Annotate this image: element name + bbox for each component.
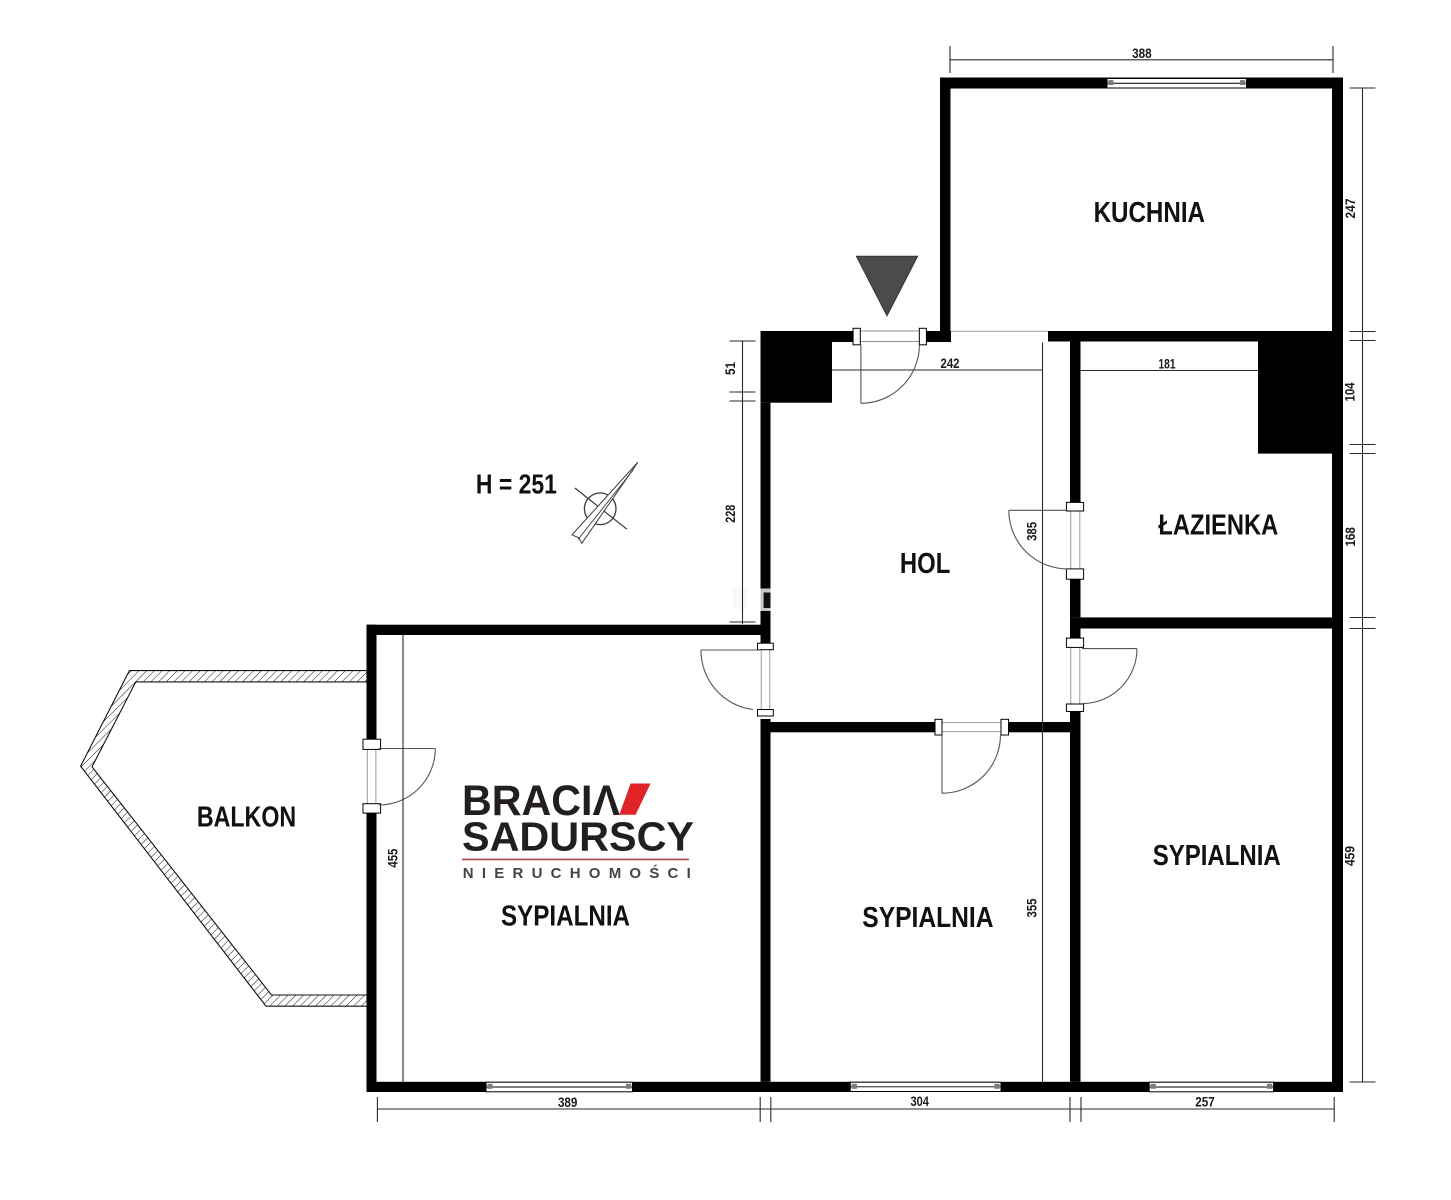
- svg-text:ŁAZIENKA: ŁAZIENKA: [1158, 510, 1278, 542]
- svg-text:NIERUCHOMOŚCI: NIERUCHOMOŚCI: [463, 864, 691, 882]
- svg-text:242: 242: [941, 356, 960, 371]
- svg-text:SYPIALNIA: SYPIALNIA: [501, 901, 630, 933]
- svg-text:228: 228: [723, 504, 738, 522]
- svg-text:SYPIALNIA: SYPIALNIA: [1153, 840, 1281, 872]
- svg-text:H = 251: H = 251: [476, 469, 557, 500]
- svg-text:355: 355: [1025, 898, 1040, 917]
- svg-text:247: 247: [1343, 199, 1358, 219]
- svg-text:BALKON: BALKON: [197, 801, 296, 833]
- svg-text:455: 455: [386, 848, 401, 867]
- svg-text:168: 168: [1343, 527, 1358, 547]
- svg-text:385: 385: [1025, 521, 1040, 540]
- svg-text:51: 51: [723, 362, 738, 375]
- svg-text:SADURSCY: SADURSCY: [462, 814, 694, 860]
- svg-text:KUCHNIA: KUCHNIA: [1094, 197, 1205, 229]
- svg-text:104: 104: [1343, 382, 1358, 401]
- svg-text:181: 181: [1159, 357, 1176, 372]
- svg-text:304: 304: [910, 1094, 929, 1109]
- svg-text:SYPIALNIA: SYPIALNIA: [862, 902, 993, 934]
- svg-text:389: 389: [558, 1095, 578, 1110]
- svg-text:459: 459: [1343, 846, 1358, 866]
- svg-text:388: 388: [1132, 46, 1152, 61]
- svg-text:HOL: HOL: [900, 548, 950, 580]
- svg-text:257: 257: [1195, 1095, 1215, 1110]
